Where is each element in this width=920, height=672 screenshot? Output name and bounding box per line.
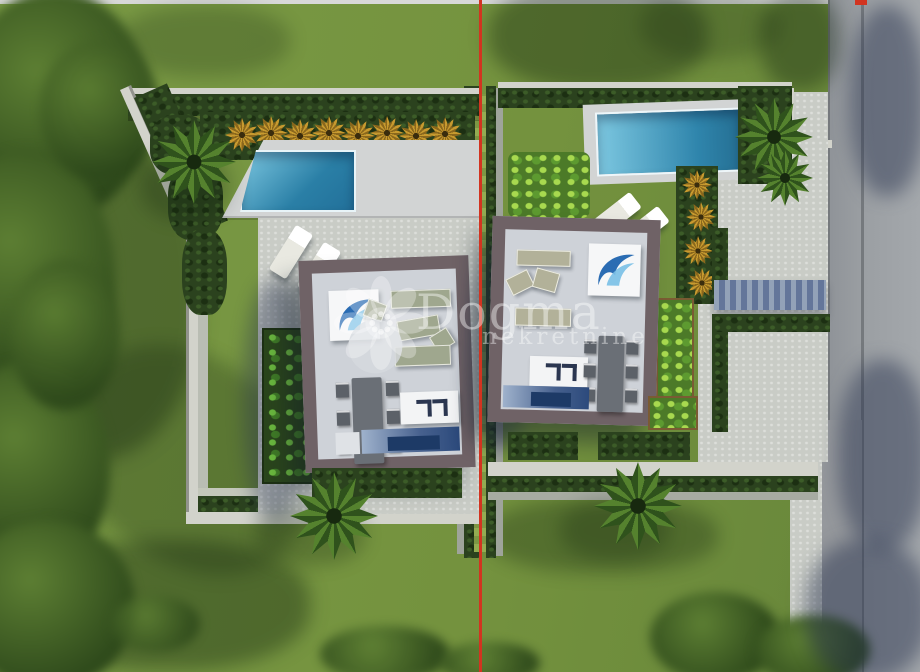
skylight-glyph <box>545 363 560 380</box>
dining-chair <box>386 381 400 396</box>
dining-chair <box>584 339 596 353</box>
garden-bed <box>508 152 590 218</box>
villa-left <box>298 255 475 473</box>
dining-table <box>597 336 625 413</box>
hedge-strip <box>712 332 728 432</box>
dining-chair <box>337 410 351 425</box>
bush <box>320 626 450 672</box>
hedge-south <box>508 432 578 460</box>
wave-icon <box>588 243 641 296</box>
dining-chair <box>626 340 638 354</box>
garden-bushes <box>182 230 227 315</box>
dining-chair <box>625 388 637 402</box>
skylight-glyph <box>561 364 576 381</box>
bush <box>110 596 200 652</box>
stair-landing <box>335 432 360 455</box>
pergola <box>714 280 826 310</box>
skylight-glyph <box>432 399 448 417</box>
wave-logo-panel <box>588 243 641 296</box>
hedge-strip <box>712 314 830 332</box>
dining-chair <box>584 363 596 377</box>
skylight-panel <box>400 391 459 425</box>
outdoor-chair <box>505 269 535 296</box>
swimming-pool <box>240 150 356 212</box>
outdoor-sofa <box>516 249 570 266</box>
road-tree-shadow <box>805 540 920 672</box>
dining-chair <box>387 409 401 424</box>
indoor-pool-deep <box>388 435 440 451</box>
outdoor-chair <box>532 267 560 293</box>
planter-box <box>648 396 698 430</box>
tree-shadow <box>760 0 840 90</box>
road-tree-shadow <box>850 6 920 196</box>
bush <box>440 642 540 672</box>
outdoor-sofa <box>390 289 451 309</box>
aerial-render: Dogma nekretnine <box>0 0 920 672</box>
property-boundary-line <box>479 0 482 672</box>
road-tree-shadow <box>838 360 920 550</box>
tree-canopy <box>10 260 120 410</box>
villa-right <box>487 216 660 426</box>
skylight-glyph <box>416 399 432 417</box>
boundary-tick <box>855 0 867 5</box>
dining-chair <box>626 364 638 378</box>
dining-chair <box>336 382 350 397</box>
swimming-pool <box>595 107 743 176</box>
tree-shadow <box>640 0 780 60</box>
hedge-south <box>598 432 690 460</box>
outdoor-sofa <box>515 307 571 326</box>
skylight-panel <box>529 356 588 388</box>
indoor-pool-deep <box>531 392 571 407</box>
outdoor-sofa <box>394 345 451 367</box>
